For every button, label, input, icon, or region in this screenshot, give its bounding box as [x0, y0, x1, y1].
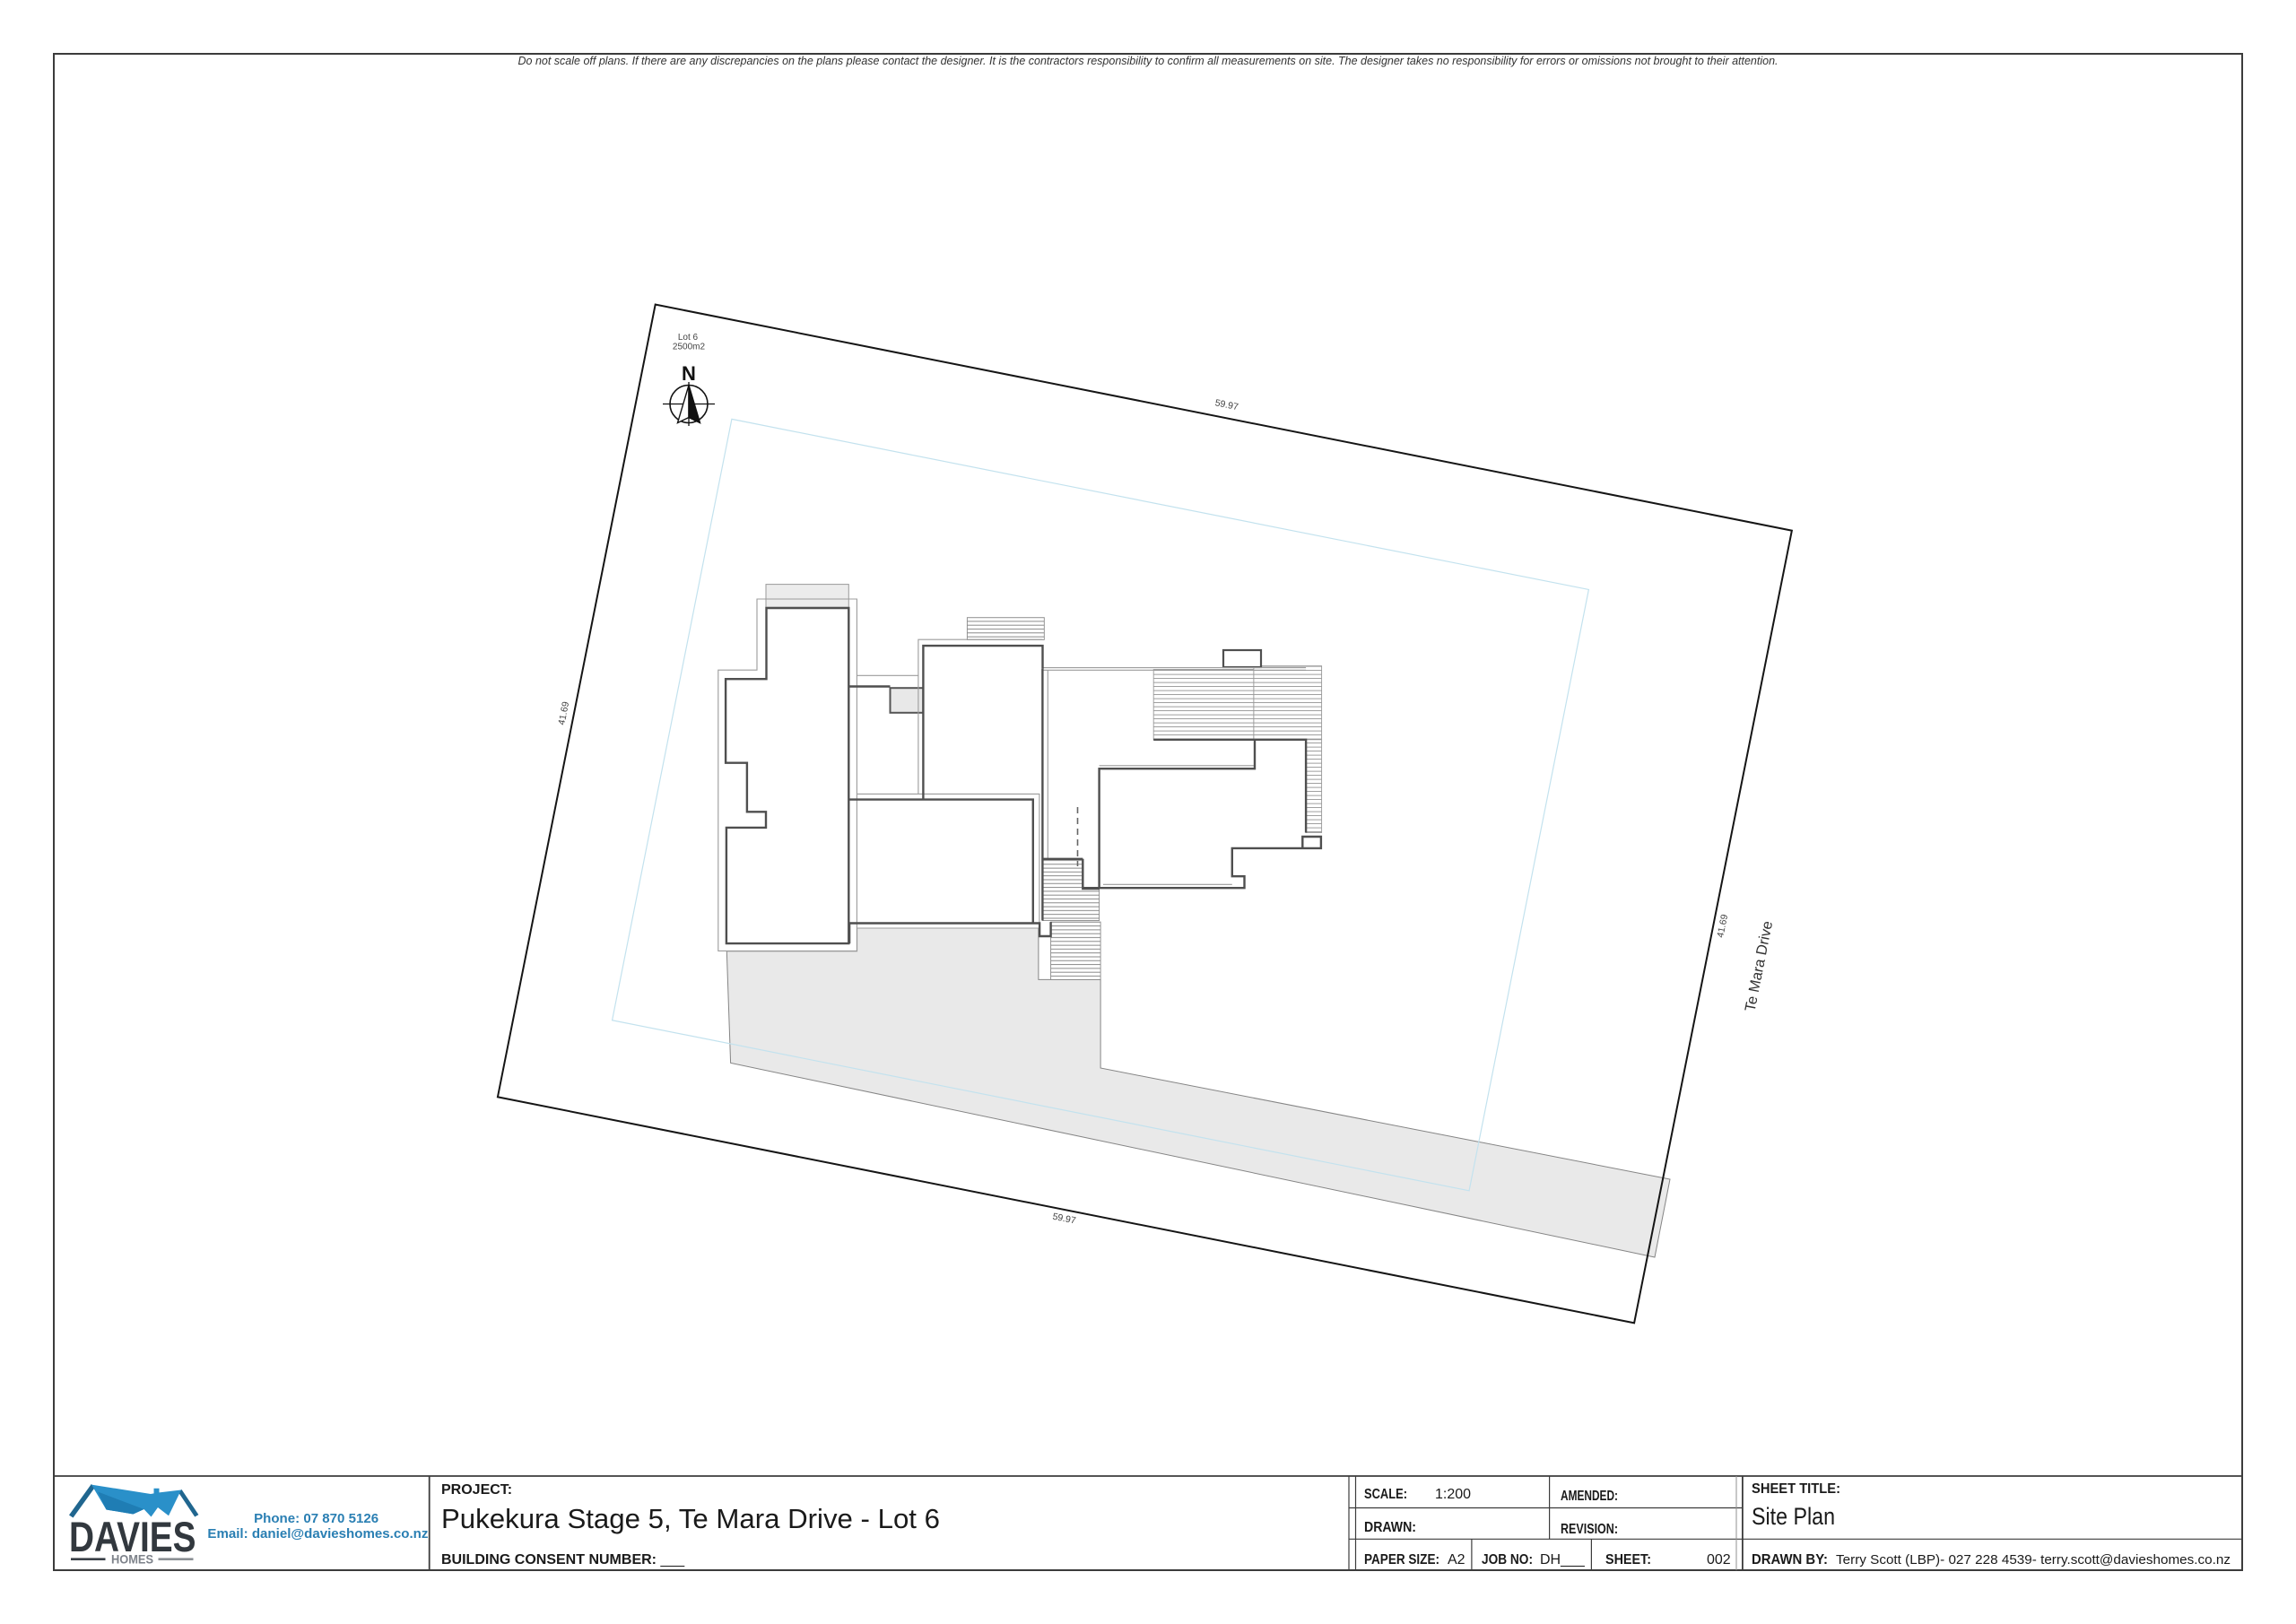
svg-text:DRAWN BY:: DRAWN BY: — [1752, 1552, 1828, 1568]
svg-text:AMENDED:: AMENDED: — [1561, 1489, 1618, 1504]
svg-text:SHEET:: SHEET: — [1605, 1552, 1651, 1568]
svg-text:PAPER SIZE:: PAPER SIZE: — [1364, 1552, 1439, 1568]
svg-text:59.97: 59.97 — [1052, 1211, 1077, 1227]
svg-text:41.69: 41.69 — [1715, 913, 1730, 938]
svg-text:Phone: 07 870 5126: Phone: 07 870 5126 — [254, 1511, 378, 1526]
svg-text:59.97: 59.97 — [1214, 397, 1239, 413]
svg-text:HOMES: HOMES — [111, 1552, 153, 1567]
svg-text:Email: daniel@davieshomes.co.n: Email: daniel@davieshomes.co.nz — [207, 1526, 428, 1541]
svg-text:BUILDING CONSENT NUMBER: ___: BUILDING CONSENT NUMBER: ___ — [441, 1552, 685, 1568]
svg-text:002: 002 — [1707, 1552, 1731, 1568]
svg-text:Site Plan: Site Plan — [1752, 1503, 1835, 1530]
svg-text:Do not scale off plans. If the: Do not scale off plans. If there are any… — [518, 54, 1779, 67]
svg-text:REVISION:: REVISION: — [1561, 1522, 1618, 1537]
svg-text:41.69: 41.69 — [556, 700, 571, 725]
svg-text:2500m2: 2500m2 — [673, 343, 706, 352]
svg-text:SHEET TITLE:: SHEET TITLE: — [1752, 1481, 1840, 1497]
svg-text:Terry Scott (LBP)- 027 228 453: Terry Scott (LBP)- 027 228 4539- terry.s… — [1836, 1552, 2231, 1568]
svg-text:Lot 6: Lot 6 — [678, 333, 699, 343]
svg-text:Pukekura Stage 5, Te Mara Driv: Pukekura Stage 5, Te Mara Drive - Lot 6 — [441, 1503, 940, 1534]
svg-text:A2: A2 — [1448, 1552, 1465, 1568]
svg-text:DH___: DH___ — [1540, 1552, 1586, 1568]
svg-text:Te Mara Drive: Te Mara Drive — [1743, 919, 1777, 1012]
svg-text:N: N — [682, 362, 696, 385]
svg-text:JOB NO:: JOB NO: — [1482, 1552, 1533, 1568]
svg-text:DRAWN:: DRAWN: — [1364, 1520, 1416, 1535]
svg-text:PROJECT:: PROJECT: — [441, 1482, 512, 1498]
svg-text:1:200: 1:200 — [1435, 1487, 1471, 1502]
svg-text:SCALE:: SCALE: — [1364, 1487, 1407, 1502]
